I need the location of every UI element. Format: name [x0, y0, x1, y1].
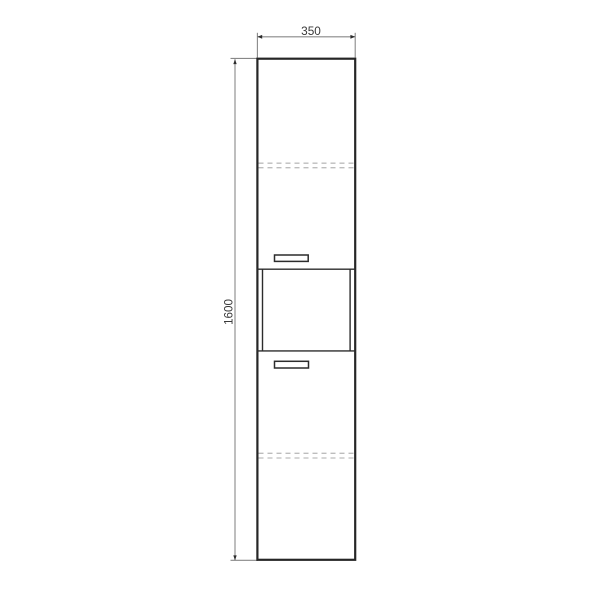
svg-text:1600: 1600 [222, 299, 235, 325]
svg-text:350: 350 [301, 24, 321, 38]
